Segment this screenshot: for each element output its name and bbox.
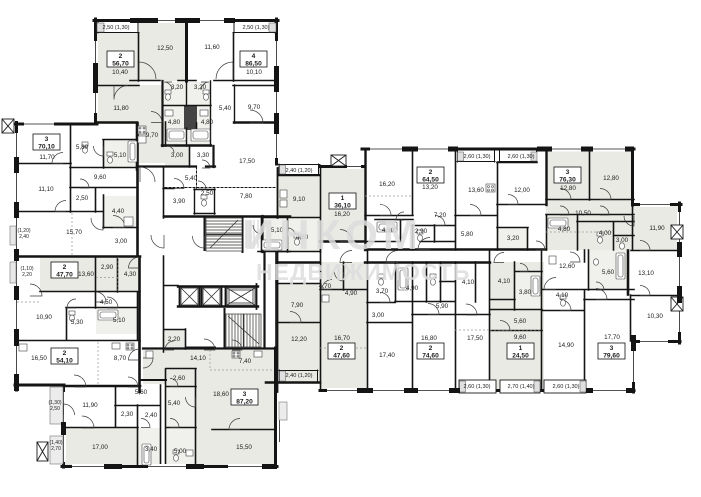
svg-text:5,60: 5,60 — [602, 269, 615, 276]
svg-text:11,80: 11,80 — [113, 105, 129, 112]
svg-text:76,30: 76,30 — [559, 177, 576, 184]
svg-text:4,90: 4,90 — [406, 285, 419, 292]
svg-text:4,50: 4,50 — [100, 299, 113, 306]
svg-text:10,40: 10,40 — [112, 69, 128, 76]
svg-text:3,00: 3,00 — [372, 312, 385, 319]
svg-text:16,20: 16,20 — [379, 181, 395, 188]
svg-text:12,00: 12,00 — [514, 187, 530, 194]
svg-text:2,20: 2,20 — [168, 336, 181, 343]
svg-text:3,20: 3,20 — [171, 84, 184, 91]
svg-text:9,70: 9,70 — [248, 104, 261, 111]
svg-text:86,50: 86,50 — [245, 61, 262, 68]
svg-text:3: 3 — [610, 345, 614, 352]
svg-text:12,80: 12,80 — [603, 175, 619, 182]
svg-text:3,40: 3,40 — [145, 446, 158, 453]
svg-text:2: 2 — [340, 345, 344, 352]
svg-text:36,10: 36,10 — [334, 203, 351, 210]
svg-text:15,50: 15,50 — [236, 444, 252, 451]
svg-text:3,30: 3,30 — [197, 152, 210, 159]
svg-text:9,60: 9,60 — [514, 334, 527, 341]
svg-text:10,10: 10,10 — [246, 69, 262, 76]
svg-text:1: 1 — [341, 195, 345, 202]
svg-text:47,60: 47,60 — [333, 353, 350, 360]
svg-text:2: 2 — [429, 345, 433, 352]
svg-text:3,00: 3,00 — [616, 237, 629, 244]
svg-text:24,50: 24,50 — [512, 353, 529, 360]
svg-text:17,50: 17,50 — [467, 335, 483, 342]
svg-text:5,90: 5,90 — [436, 303, 449, 310]
svg-text:4,40: 4,40 — [112, 208, 125, 215]
svg-text:2,60 (1,30): 2,60 (1,30) — [463, 154, 490, 160]
svg-text:2,50: 2,50 — [50, 406, 60, 412]
svg-text:79,60: 79,60 — [603, 353, 620, 360]
svg-text:2,40: 2,40 — [145, 412, 158, 419]
svg-text:17,50: 17,50 — [239, 158, 255, 165]
svg-text:1: 1 — [519, 345, 523, 352]
svg-text:4,00: 4,00 — [599, 230, 612, 237]
svg-text:2,60 (1,30): 2,60 (1,30) — [507, 154, 534, 160]
svg-text:3,20: 3,20 — [194, 84, 207, 91]
svg-text:9,70: 9,70 — [146, 132, 159, 139]
svg-text:2: 2 — [63, 264, 67, 271]
svg-text:87,20: 87,20 — [236, 399, 253, 406]
svg-text:10,90: 10,90 — [36, 314, 52, 321]
svg-text:17,70: 17,70 — [604, 334, 620, 341]
svg-text:2: 2 — [119, 53, 123, 60]
svg-text:4,10: 4,10 — [556, 292, 569, 299]
svg-text:2,30: 2,30 — [121, 411, 134, 418]
svg-text:5,10: 5,10 — [113, 317, 126, 324]
svg-text:17,00: 17,00 — [92, 444, 108, 451]
svg-text:2,60 (1,30): 2,60 (1,30) — [552, 384, 579, 390]
svg-text:4,30: 4,30 — [124, 271, 137, 278]
svg-text:12,20: 12,20 — [291, 336, 307, 343]
svg-text:16,80: 16,80 — [421, 335, 437, 342]
svg-text:7,20: 7,20 — [434, 212, 447, 219]
svg-text:2,60: 2,60 — [173, 375, 186, 382]
svg-text:3: 3 — [243, 391, 247, 398]
svg-text:5,60: 5,60 — [135, 389, 148, 396]
svg-text:5,80: 5,80 — [76, 144, 89, 151]
svg-text:5,40: 5,40 — [185, 175, 198, 182]
svg-text:11,60: 11,60 — [204, 44, 220, 51]
svg-text:3,00: 3,00 — [115, 238, 128, 245]
svg-text:НЕДВИЖИМОСТЬ: НЕДВИЖИМОСТЬ — [256, 259, 470, 285]
svg-text:7,80: 7,80 — [240, 193, 253, 200]
svg-text:5,60: 5,60 — [514, 318, 527, 325]
svg-text:12,50: 12,50 — [157, 45, 173, 52]
svg-text:4,80: 4,80 — [558, 226, 571, 233]
svg-text:13,10: 13,10 — [638, 270, 654, 277]
svg-text:2,50: 2,50 — [201, 190, 214, 197]
svg-text:2: 2 — [63, 350, 67, 357]
svg-text:13,60: 13,60 — [468, 187, 484, 194]
svg-text:4,10: 4,10 — [498, 278, 511, 285]
svg-text:3,70: 3,70 — [376, 288, 389, 295]
svg-text:12,80: 12,80 — [560, 185, 576, 192]
svg-text:4,80: 4,80 — [201, 119, 214, 126]
svg-text:5,40: 5,40 — [219, 105, 232, 112]
svg-text:13,20: 13,20 — [422, 184, 438, 191]
svg-text:3,80: 3,80 — [519, 289, 532, 296]
svg-text:7,90: 7,90 — [291, 302, 304, 309]
svg-text:54,10: 54,10 — [56, 358, 73, 365]
svg-text:5,10: 5,10 — [114, 152, 127, 159]
svg-text:2,70: 2,70 — [51, 446, 61, 452]
svg-text:2,40 (1,20): 2,40 (1,20) — [285, 168, 312, 174]
svg-text:18,60: 18,60 — [213, 391, 229, 398]
svg-text:14,90: 14,90 — [558, 342, 574, 349]
svg-text:2: 2 — [429, 169, 433, 176]
svg-text:2,40 (1,20): 2,40 (1,20) — [285, 373, 312, 379]
svg-text:2,90: 2,90 — [101, 264, 114, 271]
svg-text:10,30: 10,30 — [647, 313, 663, 320]
svg-text:11,70: 11,70 — [39, 154, 55, 161]
svg-text:4,80: 4,80 — [168, 119, 181, 126]
svg-text:3,00: 3,00 — [171, 152, 184, 159]
svg-text:14,10: 14,10 — [190, 355, 206, 362]
svg-text:3: 3 — [45, 136, 49, 143]
svg-text:5,30: 5,30 — [71, 319, 84, 326]
svg-text:2,40: 2,40 — [19, 234, 29, 240]
svg-text:10,50: 10,50 — [575, 210, 591, 217]
svg-text:47,70: 47,70 — [56, 272, 73, 279]
svg-text:7,40: 7,40 — [239, 358, 252, 365]
svg-text:5,00: 5,00 — [174, 448, 187, 455]
svg-text:15,70: 15,70 — [66, 229, 82, 236]
svg-text:11,90: 11,90 — [82, 402, 98, 409]
svg-text:5,80: 5,80 — [461, 231, 474, 238]
svg-text:ИНКОМ: ИНКОМ — [244, 211, 423, 258]
svg-text:11,90: 11,90 — [649, 225, 665, 232]
svg-text:5,40: 5,40 — [168, 400, 181, 407]
svg-text:2,60 (1,30): 2,60 (1,30) — [463, 384, 490, 390]
svg-text:2,20: 2,20 — [22, 272, 32, 278]
svg-text:9,60: 9,60 — [94, 174, 107, 181]
svg-text:2,50: 2,50 — [76, 195, 89, 202]
svg-text:13,60: 13,60 — [78, 271, 94, 278]
svg-text:3: 3 — [566, 169, 570, 176]
svg-text:2,50 (1,30): 2,50 (1,30) — [242, 25, 269, 31]
svg-text:3,90: 3,90 — [173, 198, 186, 205]
svg-text:56,70: 56,70 — [112, 61, 129, 68]
svg-text:64,50: 64,50 — [422, 177, 439, 184]
svg-text:70,10: 70,10 — [38, 144, 55, 151]
svg-text:9,10: 9,10 — [293, 196, 306, 203]
svg-text:4,90: 4,90 — [345, 290, 358, 297]
svg-text:4: 4 — [252, 53, 256, 60]
svg-text:74,60: 74,60 — [422, 353, 439, 360]
svg-text:2,50 (1,30): 2,50 (1,30) — [102, 25, 129, 31]
svg-text:16,50: 16,50 — [31, 355, 47, 362]
svg-text:17,40: 17,40 — [379, 352, 395, 359]
svg-text:3,20: 3,20 — [507, 235, 520, 242]
svg-text:2,70 (1,40): 2,70 (1,40) — [507, 384, 534, 390]
svg-text:16,70: 16,70 — [334, 335, 350, 342]
svg-text:12,60: 12,60 — [559, 263, 575, 270]
svg-text:8,70: 8,70 — [114, 355, 127, 362]
svg-text:11,10: 11,10 — [38, 186, 54, 193]
